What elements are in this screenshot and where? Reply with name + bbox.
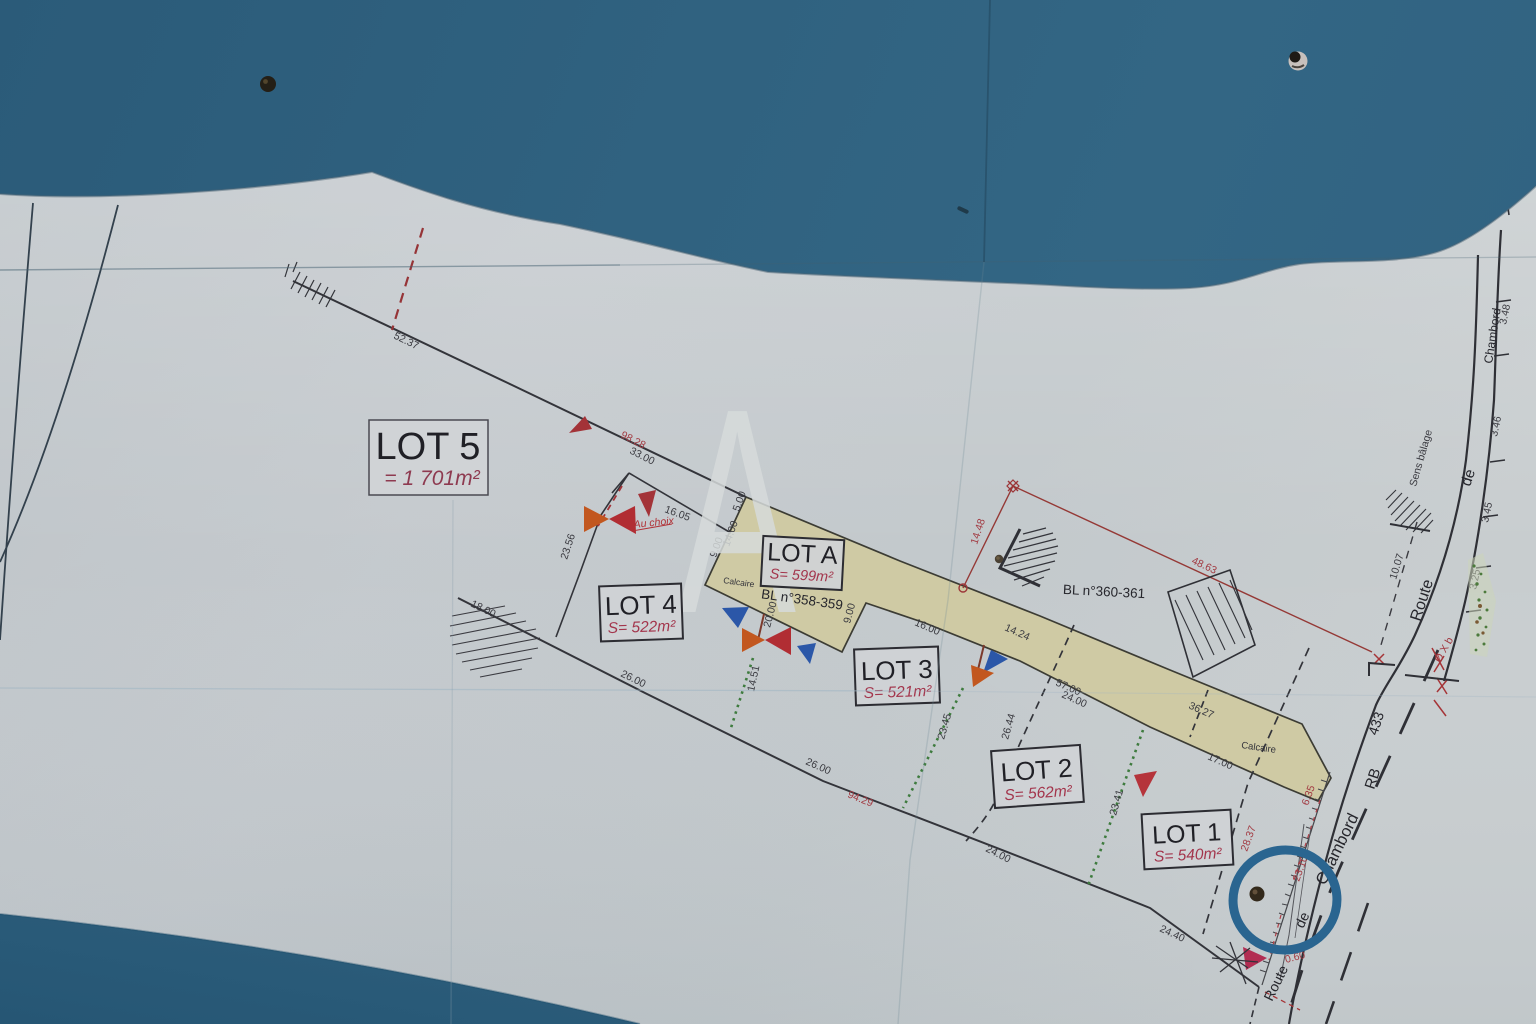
svg-text:S= 521m²: S= 521m² (863, 683, 932, 702)
svg-text:LOT 3: LOT 3 (860, 654, 933, 686)
svg-text:LOT 2: LOT 2 (1000, 753, 1074, 788)
svg-text:S= 599m²: S= 599m² (769, 566, 834, 585)
svg-text:LOT 4: LOT 4 (604, 589, 677, 621)
svg-text:S= 540m²: S= 540m² (1154, 845, 1223, 866)
svg-text:S= 522m²: S= 522m² (607, 618, 676, 637)
svg-text:= 1 701m²: = 1 701m² (384, 467, 480, 490)
svg-text:A: A (678, 348, 797, 674)
svg-text:LOT A: LOT A (767, 538, 839, 570)
svg-text:LOT 5: LOT 5 (376, 426, 481, 468)
